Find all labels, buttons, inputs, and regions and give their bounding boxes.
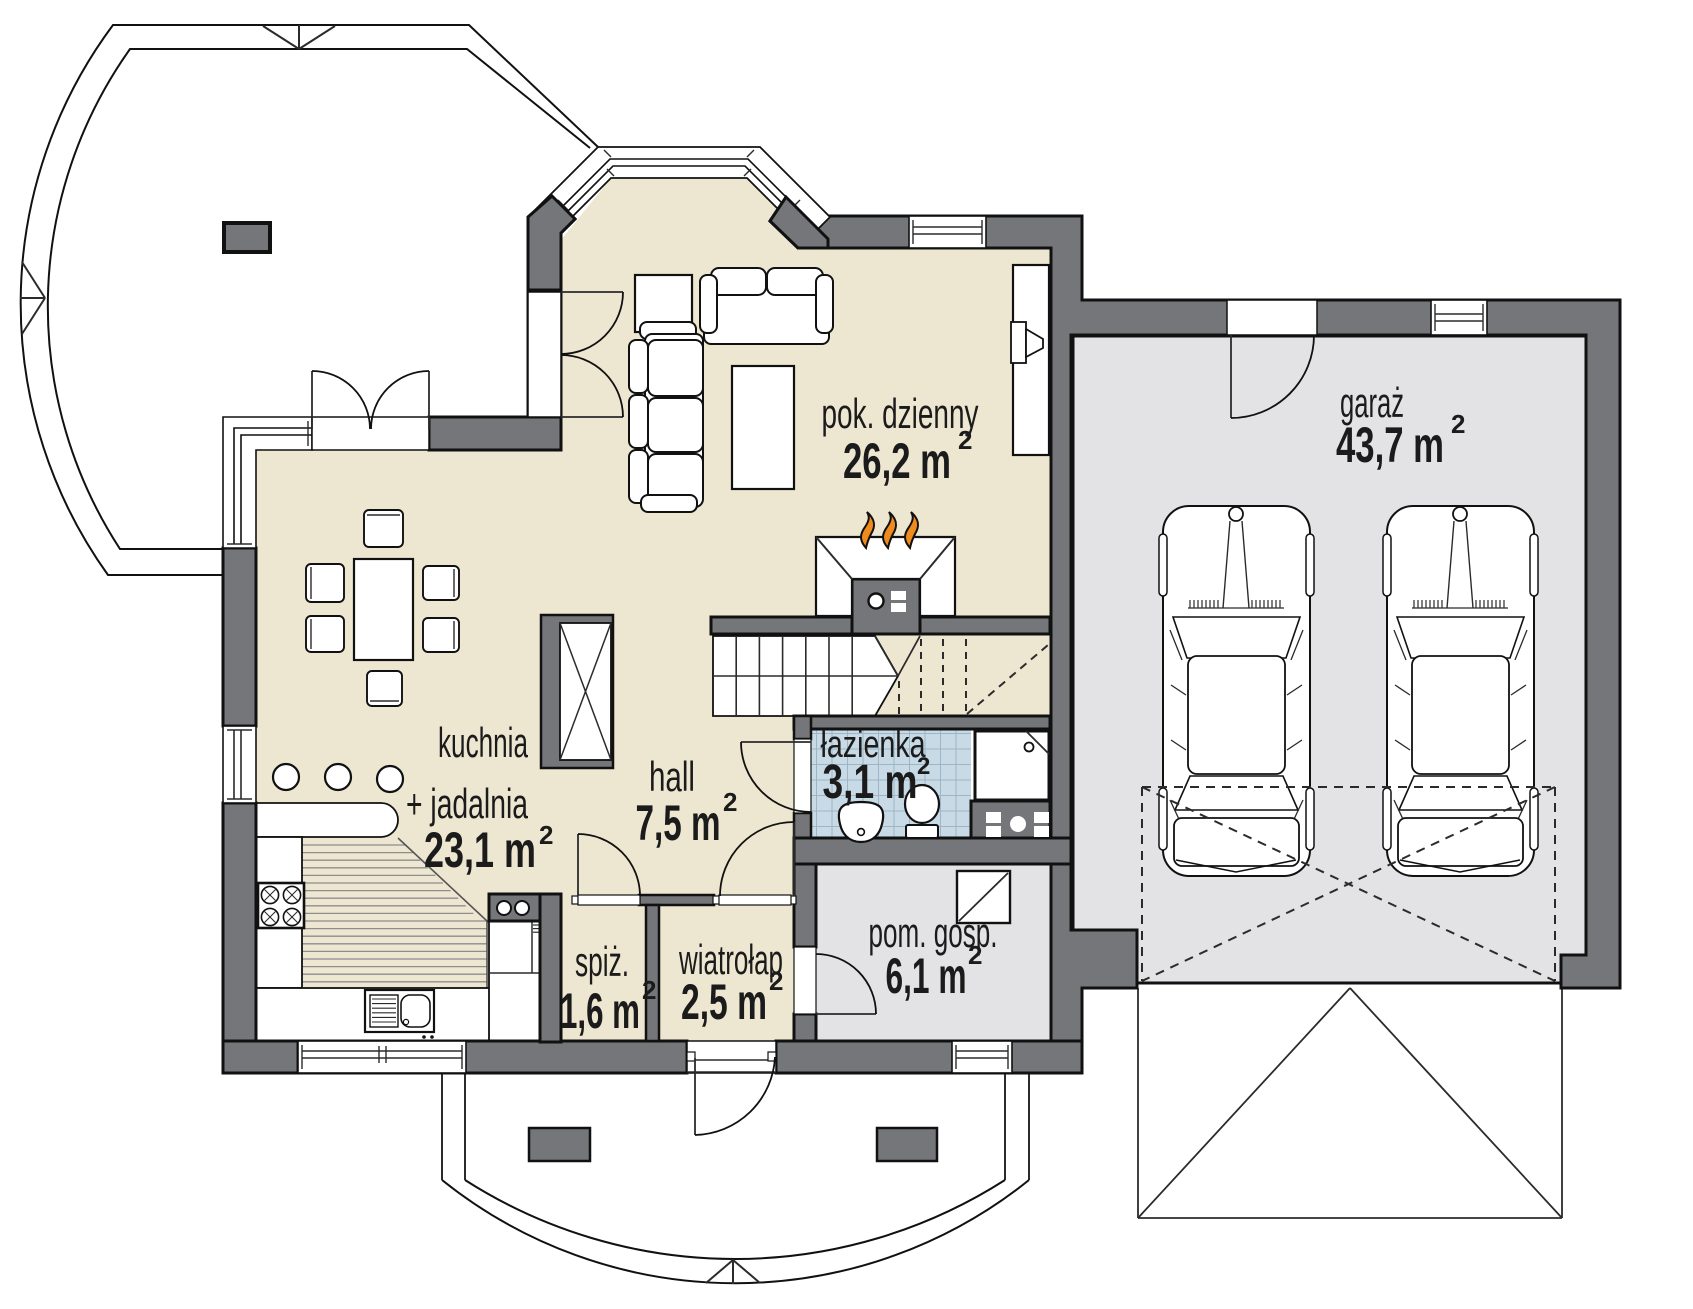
- svg-text:26,2 m: 26,2 m: [843, 433, 951, 489]
- svg-text:7,5 m: 7,5 m: [636, 795, 721, 851]
- svg-text:+ jadalnia: + jadalnia: [406, 780, 528, 827]
- svg-text:2,5 m: 2,5 m: [681, 974, 767, 1030]
- svg-text:pok. dzienny: pok. dzienny: [822, 390, 979, 437]
- svg-text:6,1 m: 6,1 m: [886, 948, 967, 1004]
- svg-text:3,1 m: 3,1 m: [823, 756, 918, 809]
- svg-text:hall: hall: [649, 753, 695, 800]
- svg-text:2: 2: [723, 787, 737, 817]
- svg-text:1,6 m: 1,6 m: [560, 983, 640, 1039]
- svg-text:43,7 m: 43,7 m: [1336, 417, 1444, 473]
- svg-text:2: 2: [539, 820, 553, 850]
- svg-text:2: 2: [642, 975, 656, 1005]
- svg-text:23,1 m: 23,1 m: [424, 822, 536, 878]
- svg-text:spiż.: spiż.: [575, 938, 629, 985]
- svg-text:2: 2: [769, 966, 783, 996]
- svg-text:2: 2: [917, 753, 930, 780]
- svg-text:2: 2: [968, 940, 982, 970]
- svg-text:2: 2: [1451, 409, 1465, 439]
- svg-text:kuchnia: kuchnia: [438, 719, 528, 766]
- svg-text:2: 2: [958, 425, 972, 455]
